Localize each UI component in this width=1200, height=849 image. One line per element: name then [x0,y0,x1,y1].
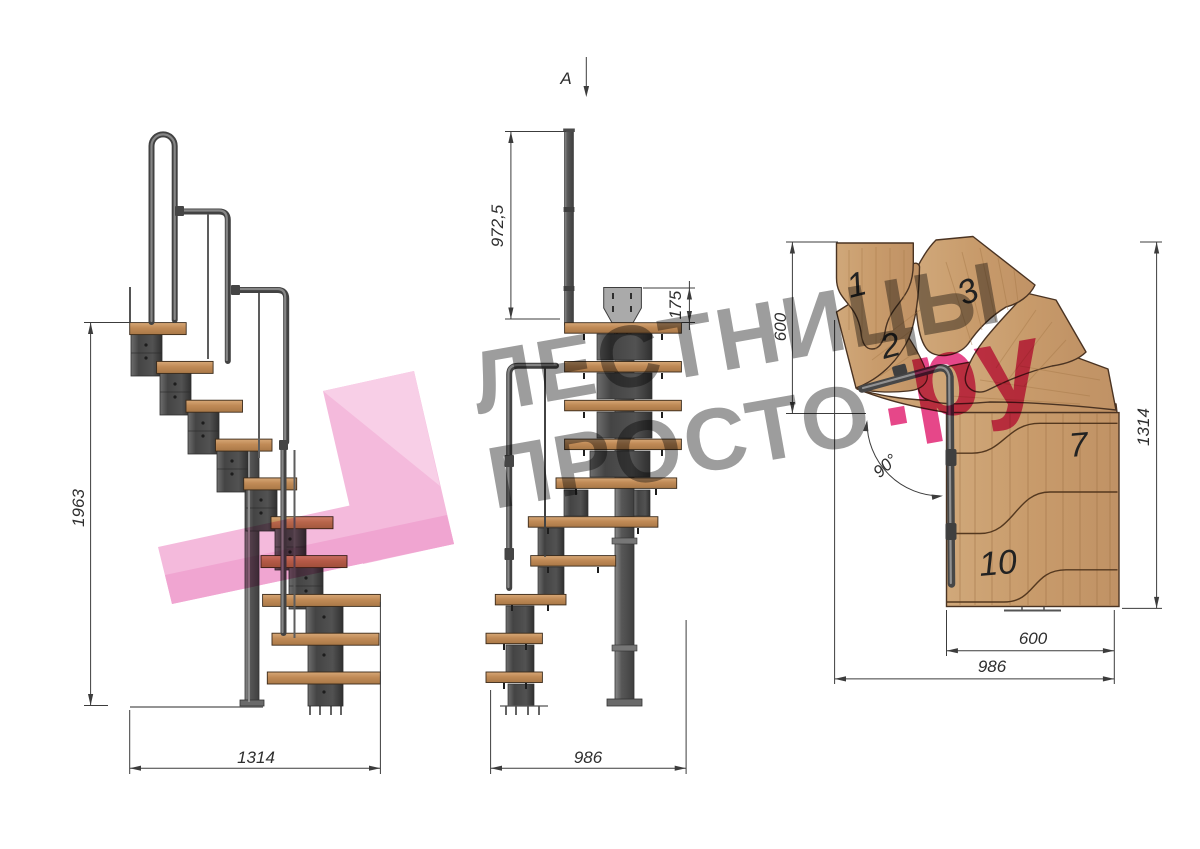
svg-text:A: A [559,69,571,88]
svg-text:986: 986 [574,748,603,767]
svg-text:10: 10 [977,543,1018,584]
svg-text:972,5: 972,5 [488,204,507,247]
svg-text:1963: 1963 [69,489,88,527]
svg-text:600: 600 [1019,629,1048,648]
svg-text:1314: 1314 [237,748,275,767]
svg-text:986: 986 [978,657,1007,676]
svg-text:1314: 1314 [1134,408,1153,446]
